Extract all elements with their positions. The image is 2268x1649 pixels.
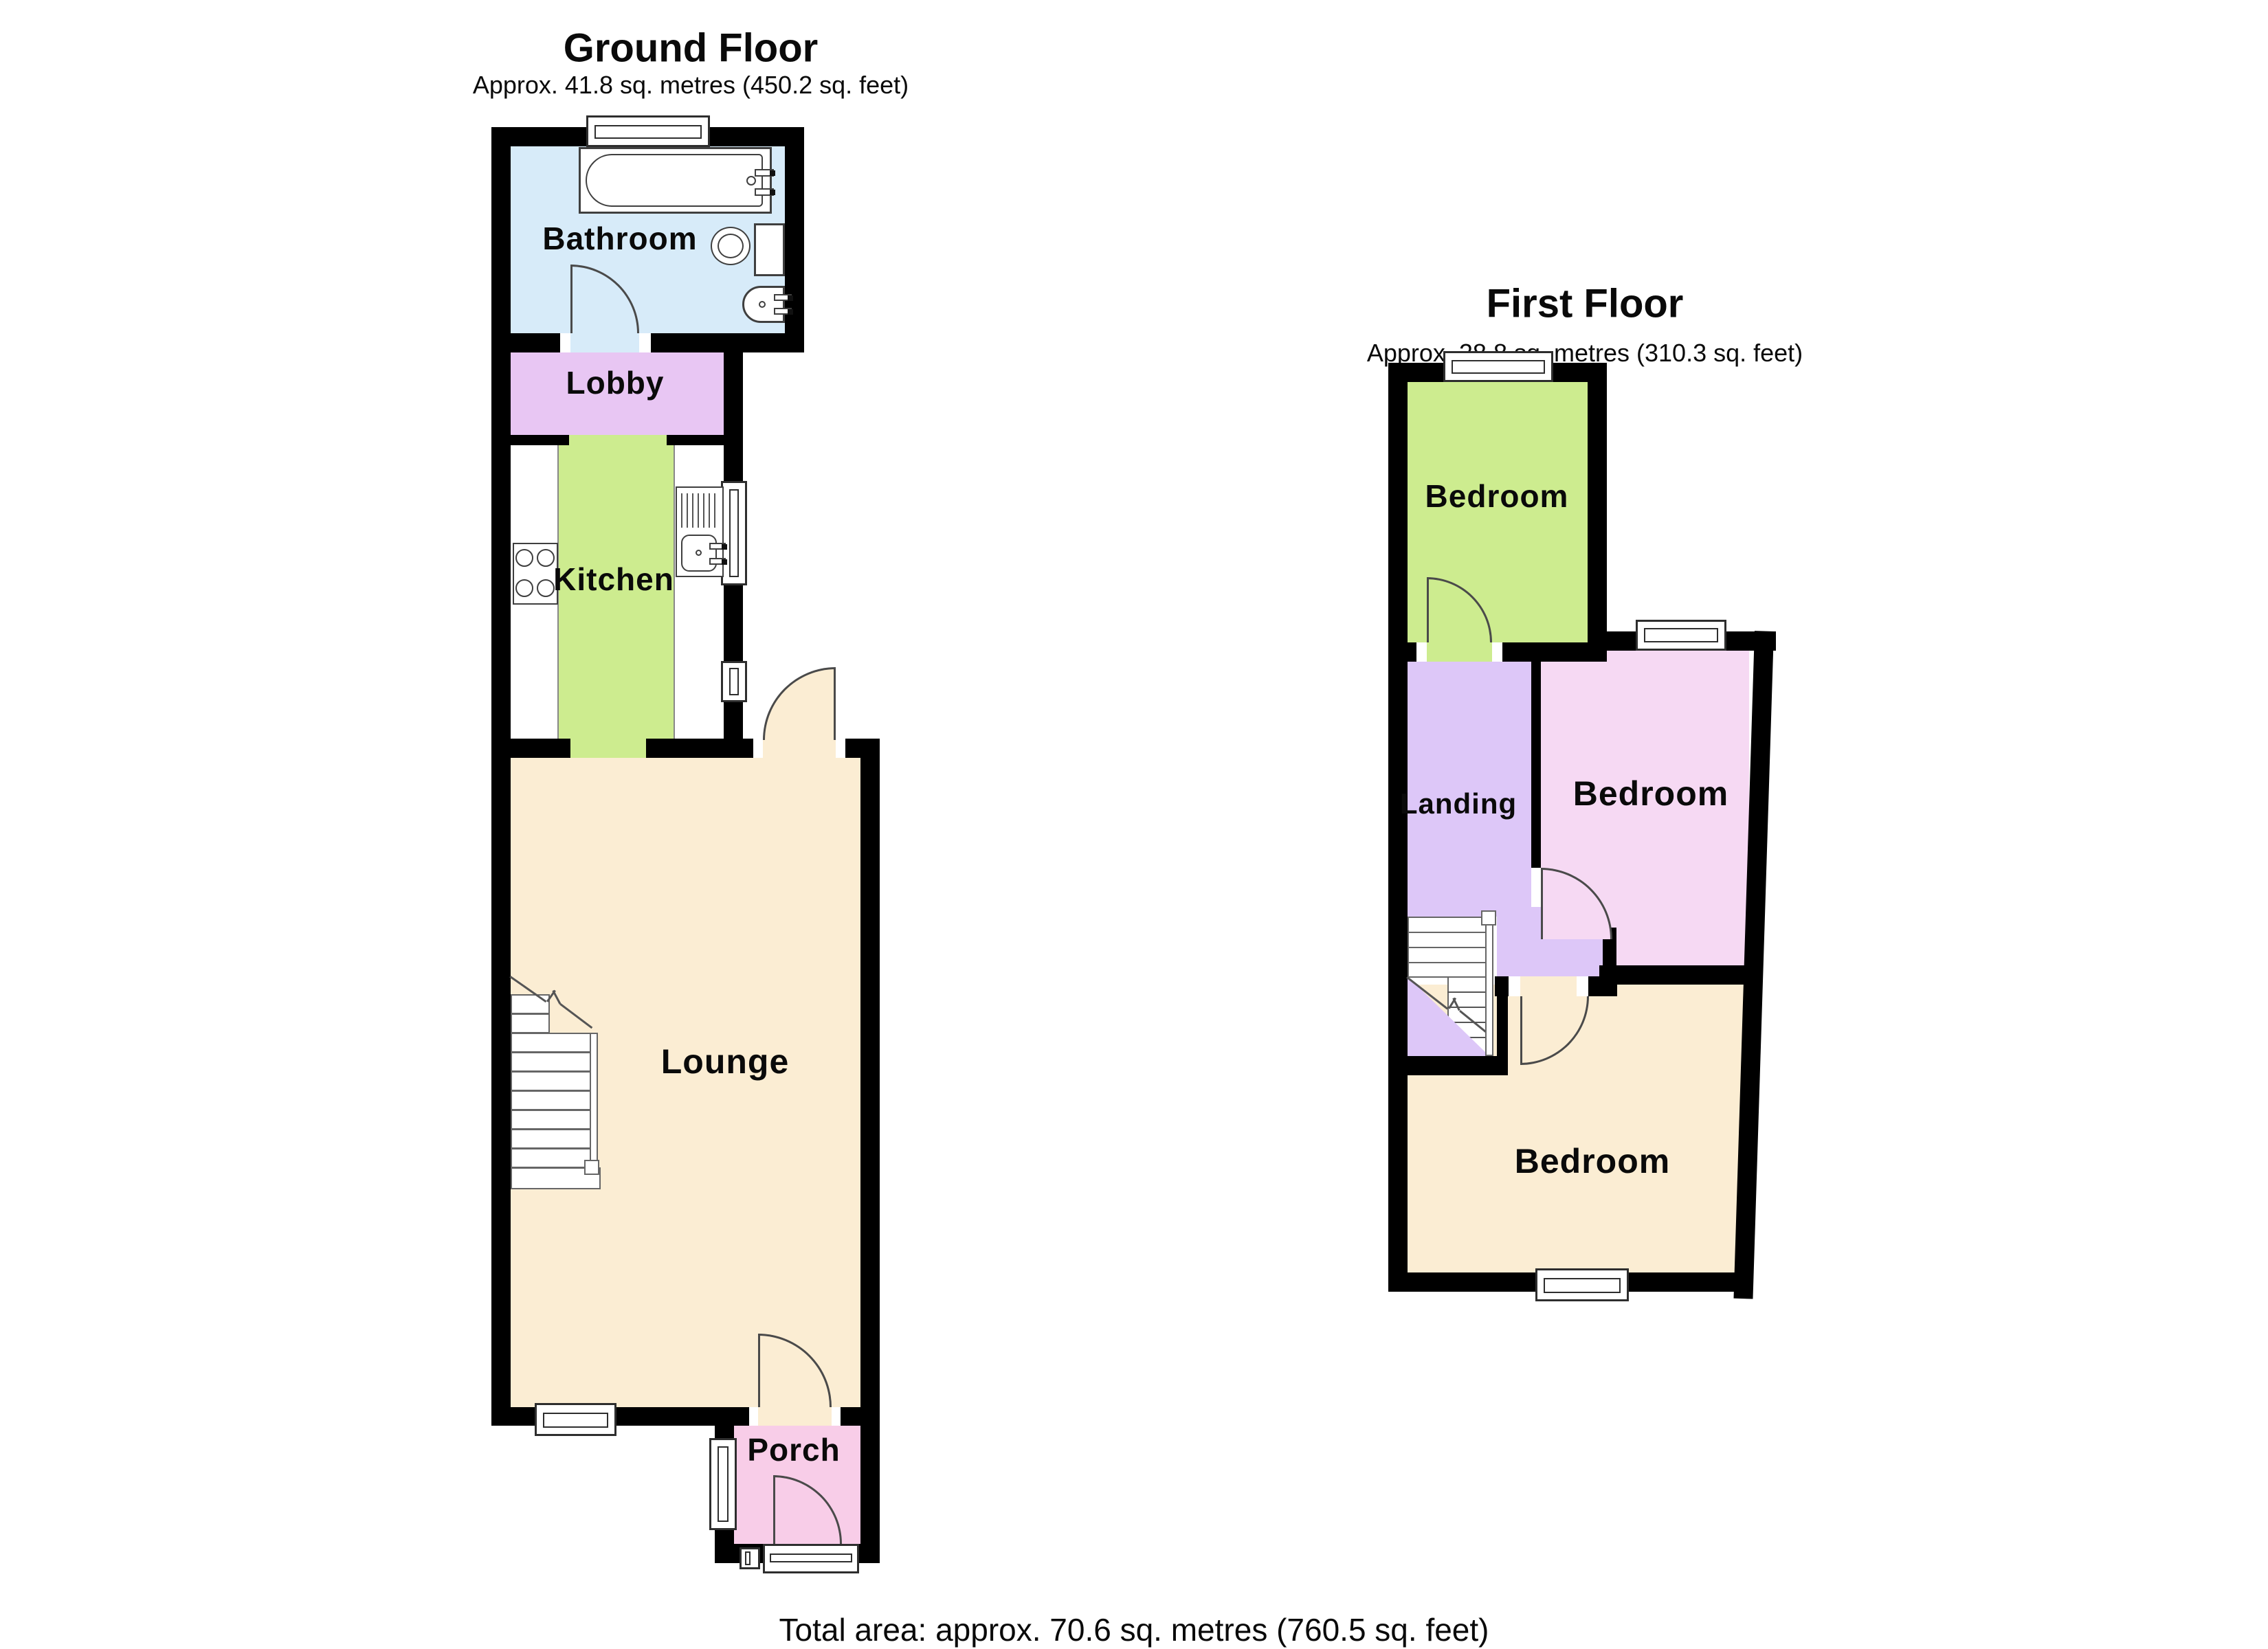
stair-break-line — [552, 990, 561, 1005]
stair-tread — [1408, 947, 1489, 963]
stair-tread — [511, 1033, 592, 1053]
doorway-porch — [758, 1407, 832, 1426]
window-pane — [729, 489, 739, 577]
window-pane — [1644, 628, 1718, 642]
porch-threshold-line — [770, 1553, 852, 1562]
stair-tread — [511, 1090, 592, 1110]
wall — [511, 333, 804, 352]
window-pane — [1452, 360, 1545, 374]
door-stop — [1577, 976, 1588, 996]
window-pane — [543, 1413, 608, 1428]
room-label-bedroom-front: Bedroom — [1515, 1141, 1670, 1181]
porch-step-line — [745, 1551, 751, 1565]
tap-tip — [722, 559, 727, 565]
bath-tub-inner — [586, 154, 763, 207]
wall — [1588, 363, 1607, 651]
room-label-lounge: Lounge — [661, 1042, 790, 1081]
opening-lobby-kitchen — [569, 435, 667, 445]
drainer-line — [709, 493, 710, 528]
stair-break-line — [559, 1003, 592, 1029]
stair-tread — [1408, 917, 1489, 933]
toilet-bowl-inner — [718, 234, 744, 258]
wall — [785, 127, 804, 352]
tap-tip — [788, 295, 793, 301]
door-stop — [836, 739, 845, 758]
window-pane — [718, 1446, 729, 1522]
stairs-ground — [511, 976, 601, 1190]
hob-ring — [515, 549, 533, 567]
tap-tip — [722, 544, 727, 550]
stair-newel — [584, 1160, 599, 1175]
stair-tread — [511, 1129, 592, 1149]
stair-tread — [511, 1148, 592, 1168]
wall — [1531, 652, 1541, 868]
hob-ring — [537, 549, 555, 567]
opening-kitchen-lounge — [570, 739, 646, 758]
room-label-bathroom: Bathroom — [542, 220, 697, 257]
hob-ring — [515, 579, 533, 597]
drainer-line — [703, 493, 704, 528]
wall — [1599, 965, 1750, 985]
stair-tread — [511, 1110, 592, 1130]
stair-tread — [511, 994, 550, 1014]
wall — [860, 740, 880, 1563]
doorway-bedroom-rear — [1427, 642, 1492, 662]
drainer-line — [692, 493, 693, 528]
room-label-kitchen: Kitchen — [553, 561, 674, 598]
door-stop — [749, 1407, 758, 1426]
stair-tread — [511, 1052, 592, 1072]
door-stop — [639, 333, 651, 352]
drainer-line — [698, 493, 699, 528]
ground-floor-subtitle: Approx. 41.8 sq. metres (450.2 sq. feet) — [473, 71, 909, 100]
drain-icon — [746, 176, 756, 186]
first-floor-title: First Floor — [1487, 281, 1684, 327]
door-arc-entrance — [763, 667, 836, 740]
doorway-bedroom-front — [1520, 976, 1577, 996]
hob-ring — [537, 579, 555, 597]
window-pane — [594, 125, 702, 139]
toilet-cistern — [754, 223, 785, 276]
stair-tread — [511, 1071, 592, 1091]
window-pane — [1544, 1278, 1621, 1293]
stair-rail — [590, 1033, 598, 1168]
room-label-lobby: Lobby — [566, 364, 665, 401]
window-pane — [729, 668, 739, 695]
drainer-line — [681, 493, 682, 528]
ground-floor-title: Ground Floor — [564, 25, 819, 71]
drainer-line — [714, 493, 715, 528]
stair-tread — [1408, 932, 1489, 948]
room-label-porch: Porch — [747, 1431, 840, 1468]
total-area-text: Total area: approx. 70.6 sq. metres (760… — [779, 1611, 1489, 1648]
stair-newel — [1481, 910, 1496, 926]
drain-icon — [759, 301, 766, 308]
stair-tread — [1408, 962, 1489, 978]
drain-icon — [696, 550, 702, 556]
door-stop — [753, 739, 763, 758]
room-label-bedroom-rear: Bedroom — [1425, 478, 1569, 515]
stair-rail — [1485, 917, 1493, 1056]
floorplan-page: Ground Floor Approx. 41.8 sq. metres (45… — [0, 0, 2268, 1649]
door-stop — [832, 1407, 841, 1426]
doorway-entrance — [763, 739, 836, 758]
stair-tread-line — [1447, 991, 1489, 993]
tap-tip — [788, 309, 793, 315]
room-label-landing: Landing — [1400, 787, 1517, 820]
stairs-first — [1408, 917, 1497, 1056]
door-stop — [1509, 976, 1520, 996]
wall — [1388, 363, 1408, 1292]
stair-tread — [511, 1013, 550, 1033]
tap-tip — [770, 170, 775, 176]
doorway-bathroom — [570, 333, 639, 352]
door-stop — [1416, 642, 1427, 662]
door-stop — [1492, 642, 1502, 662]
room-label-bedroom-middle: Bedroom — [1573, 774, 1728, 814]
stair-tread-line — [1447, 1007, 1489, 1008]
door-stop — [560, 333, 570, 352]
wall — [491, 127, 511, 1426]
tap-tip — [770, 190, 775, 195]
wall — [1388, 1056, 1507, 1075]
drainer-line — [687, 493, 688, 528]
